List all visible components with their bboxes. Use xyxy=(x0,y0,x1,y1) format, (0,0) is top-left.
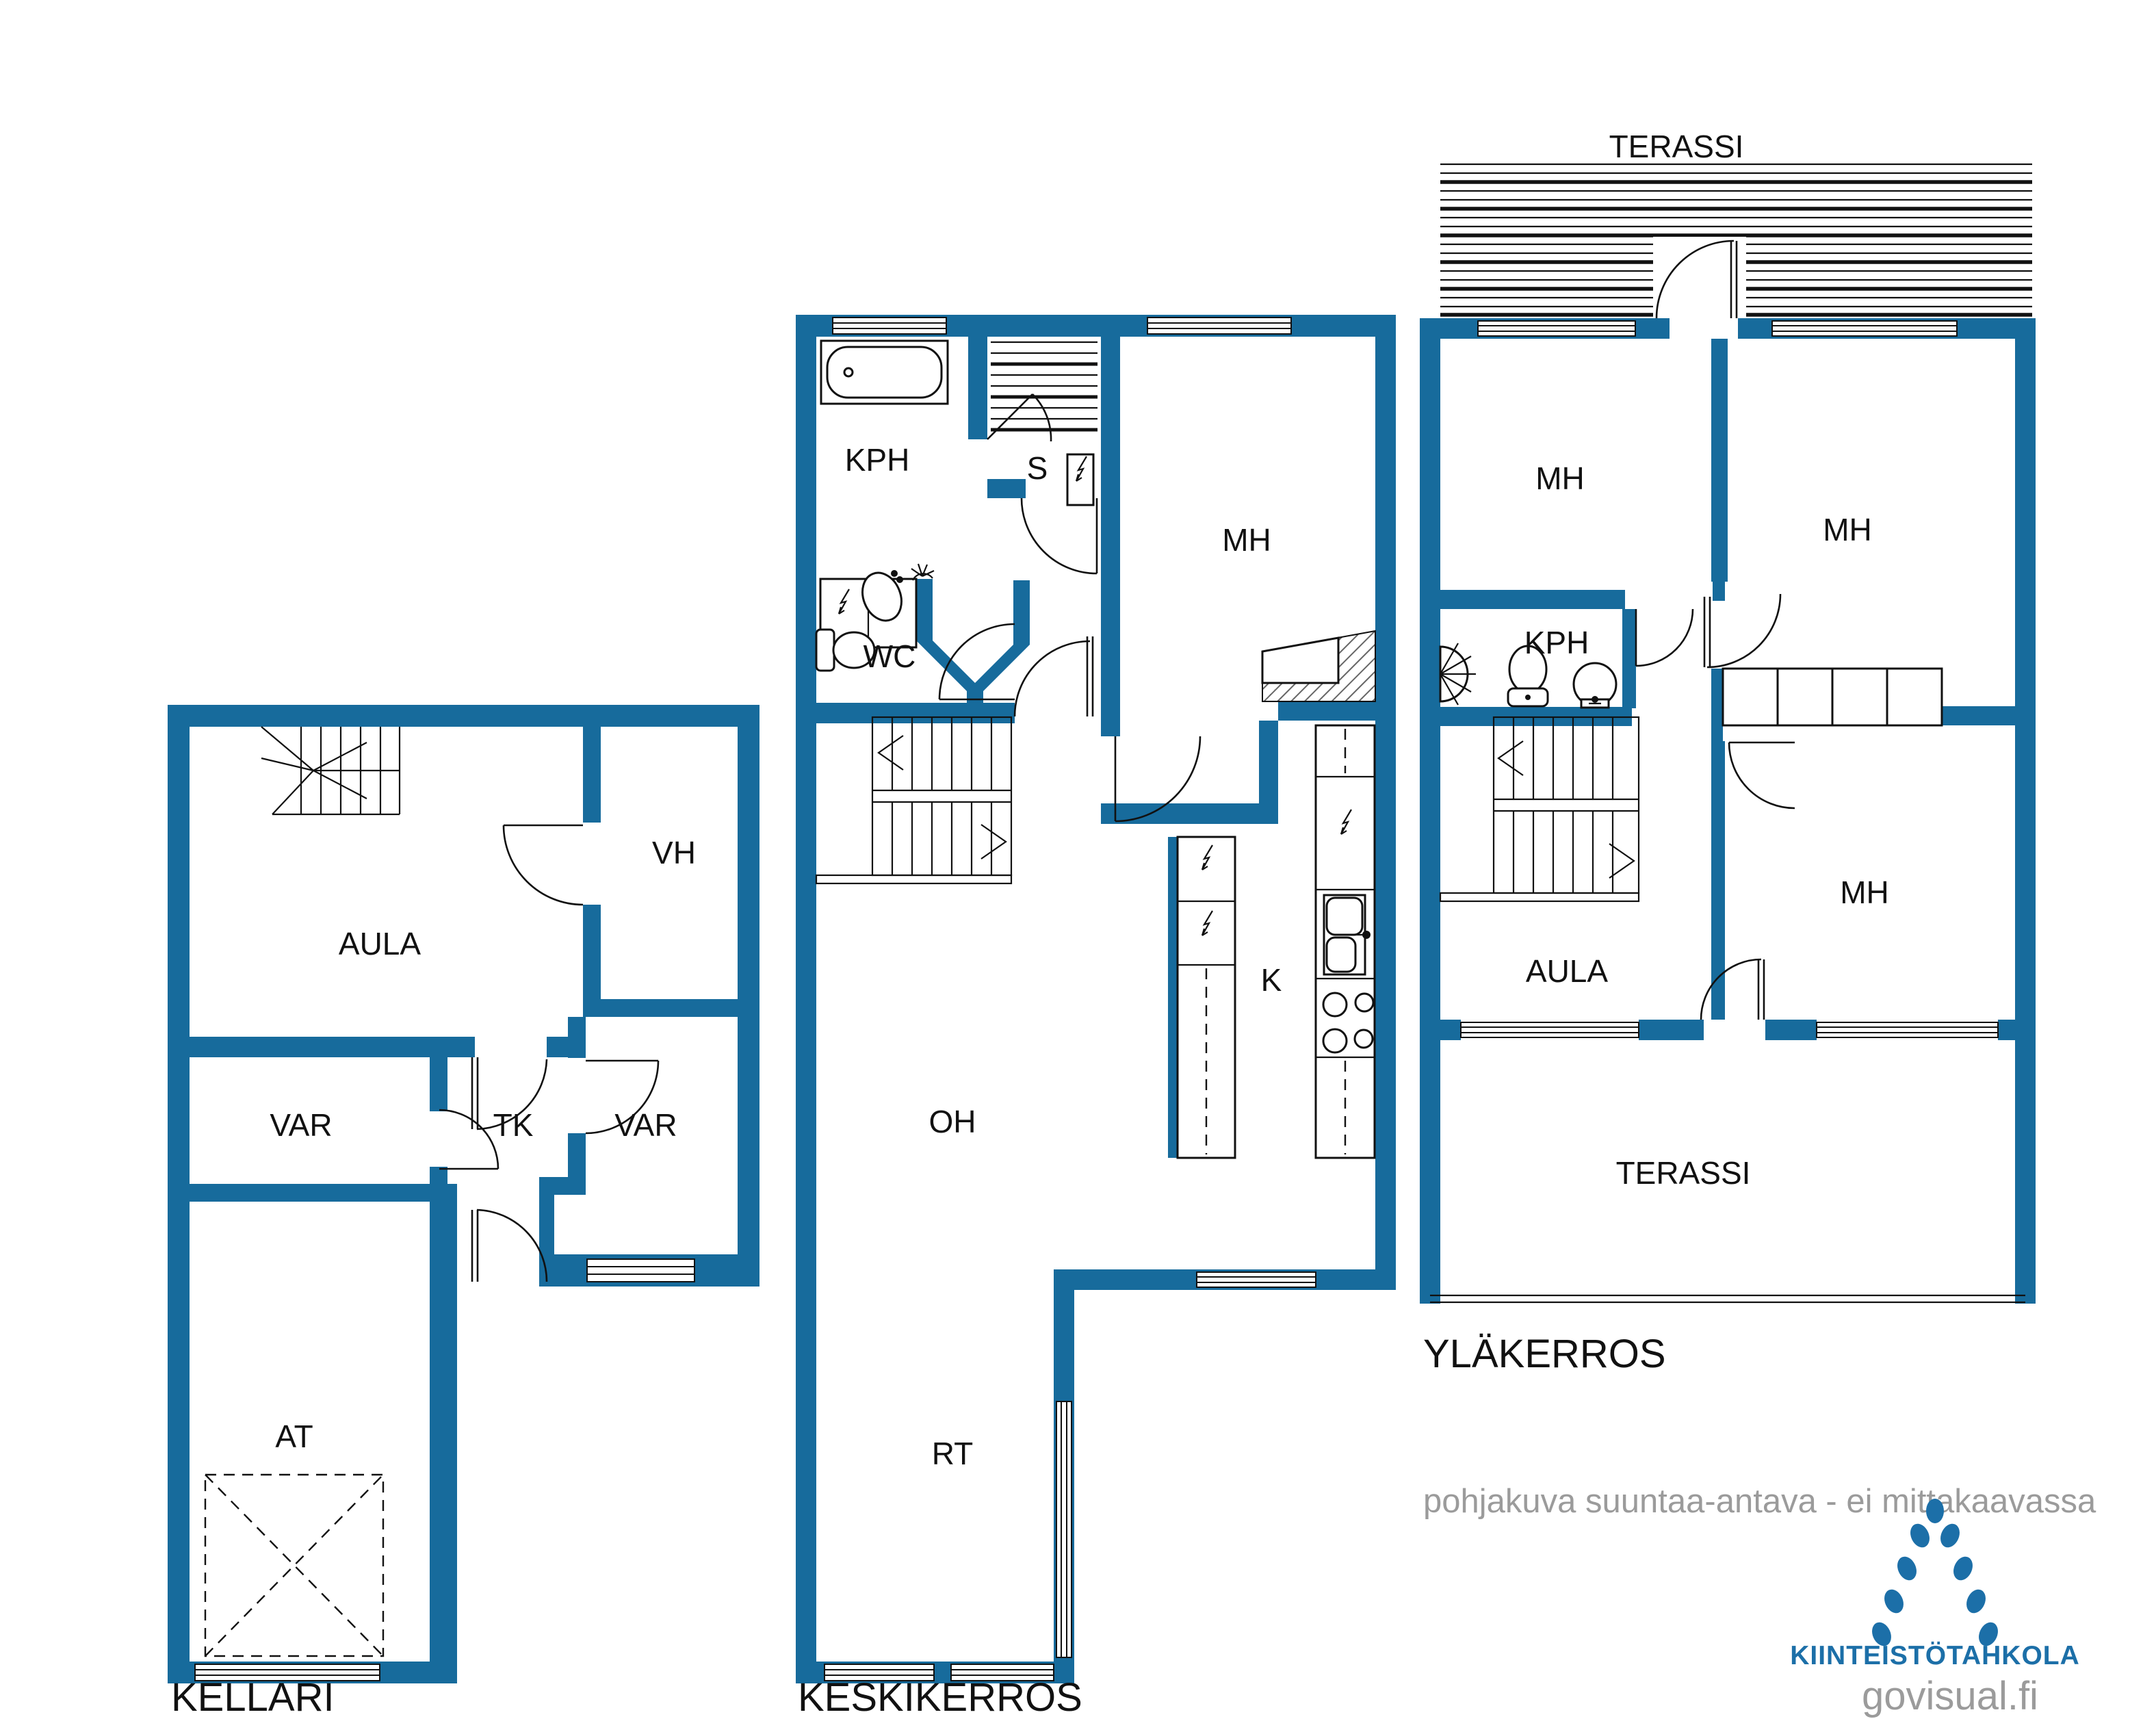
window-mh-left-top xyxy=(1478,321,1635,336)
room-label-var-right: VAR xyxy=(614,1107,677,1143)
shower-icon xyxy=(1440,643,1476,705)
ylakerros-stairs-icon xyxy=(1440,717,1639,901)
door-var-left xyxy=(439,1110,498,1169)
kiinteistotahkola-logo-icon xyxy=(1869,1499,2001,1649)
washbasin-icon-upper xyxy=(1574,663,1616,708)
room-label-var-left: VAR xyxy=(270,1107,332,1143)
kitchen-counter-right xyxy=(1316,725,1375,1158)
window-var xyxy=(587,1259,694,1282)
room-label-kph-upper: KPH xyxy=(1524,625,1589,660)
window-aula-bottom xyxy=(1461,1022,1639,1037)
room-label-aula-upper: AULA xyxy=(1526,953,1608,989)
terrace-railing xyxy=(1430,1295,2025,1302)
room-label-vh: VH xyxy=(652,835,696,870)
window-top-left xyxy=(833,318,946,334)
room-label-wc: WC xyxy=(863,638,916,674)
room-label-mh-top-left: MH xyxy=(1535,461,1585,496)
room-label-terassi-top: TERASSI xyxy=(1609,129,1744,164)
floor-plan-ylakerros: TERASSI MH MH KPH MH AULA TERASSI YLÄKER… xyxy=(1420,129,2036,1376)
door-mh-top-right xyxy=(1704,594,1780,667)
kitchen-sink-icon xyxy=(1324,895,1371,974)
window-top-right xyxy=(1147,318,1291,334)
floor-plan-kellari: AULA VH VAR TK VAR AT KELLARI xyxy=(168,705,759,1719)
door-sauna xyxy=(1022,498,1097,573)
garage-area-marker xyxy=(205,1475,383,1656)
room-label-mh-top-right: MH xyxy=(1823,512,1872,547)
room-label-s: S xyxy=(1027,450,1048,486)
door-kellari-exit xyxy=(472,1210,547,1282)
room-label-terassi-bottom: TERASSI xyxy=(1616,1155,1751,1191)
door-kph-upper xyxy=(1636,609,1693,666)
floor-title-keskikerros: KESKIKERROS xyxy=(798,1675,1082,1719)
door-kph xyxy=(987,394,1051,441)
kellari-stairs-icon xyxy=(261,727,400,814)
keskikerros-walls xyxy=(796,315,1396,1683)
room-label-mh: MH xyxy=(1222,522,1271,558)
room-label-rt: RT xyxy=(932,1436,974,1471)
watermark-text: govisual.fi xyxy=(1862,1674,2038,1718)
brand-text: KIINTEISTÖTAHKOLA xyxy=(1790,1641,2080,1670)
door-terrace-bottom xyxy=(1701,959,1764,1020)
door-mh-lower xyxy=(1729,742,1795,808)
window-mh-bottom xyxy=(1817,1022,1998,1037)
room-label-aula: AULA xyxy=(339,926,421,961)
shower-head-icon xyxy=(911,564,934,580)
room-label-kph: KPH xyxy=(845,442,910,478)
floor-plan-keskikerros: KPH S MH WC OH K RT KESKIKERROS xyxy=(796,315,1396,1719)
sauna-bench-icon xyxy=(991,342,1098,430)
room-label-k: K xyxy=(1261,962,1282,998)
sauna-heater-icon xyxy=(1067,454,1093,505)
window-step xyxy=(1197,1272,1316,1287)
bathtub-icon xyxy=(821,341,948,404)
window-mh-right-top xyxy=(1772,321,1957,336)
disclaimer-text: pohjakuva suuntaa-antava - ei mittakaava… xyxy=(1423,1483,2096,1520)
door-hall-oh xyxy=(1015,636,1093,716)
closet-row xyxy=(1723,669,1942,725)
floor-title-kellari: KELLARI xyxy=(171,1675,335,1719)
floorplan-page: AULA VH VAR TK VAR AT KELLARI xyxy=(0,0,2156,1719)
floorplan-canvas: AULA VH VAR TK VAR AT KELLARI xyxy=(0,0,2156,1719)
room-label-oh: OH xyxy=(929,1104,976,1139)
footer: pohjakuva suuntaa-antava - ei mittakaava… xyxy=(1423,1483,2096,1718)
floor-title-ylakerros: YLÄKERROS xyxy=(1423,1332,1666,1376)
room-label-at: AT xyxy=(275,1419,313,1454)
window-tall-right xyxy=(1056,1401,1071,1657)
fireplace-flue-icon xyxy=(1262,631,1375,701)
kitchen-counter-island xyxy=(1178,837,1235,1158)
door-aula-vh xyxy=(504,825,583,905)
room-label-mh-lower: MH xyxy=(1840,875,1889,910)
keskikerros-stairs-icon xyxy=(816,717,1011,883)
room-label-tk: TK xyxy=(493,1107,534,1143)
